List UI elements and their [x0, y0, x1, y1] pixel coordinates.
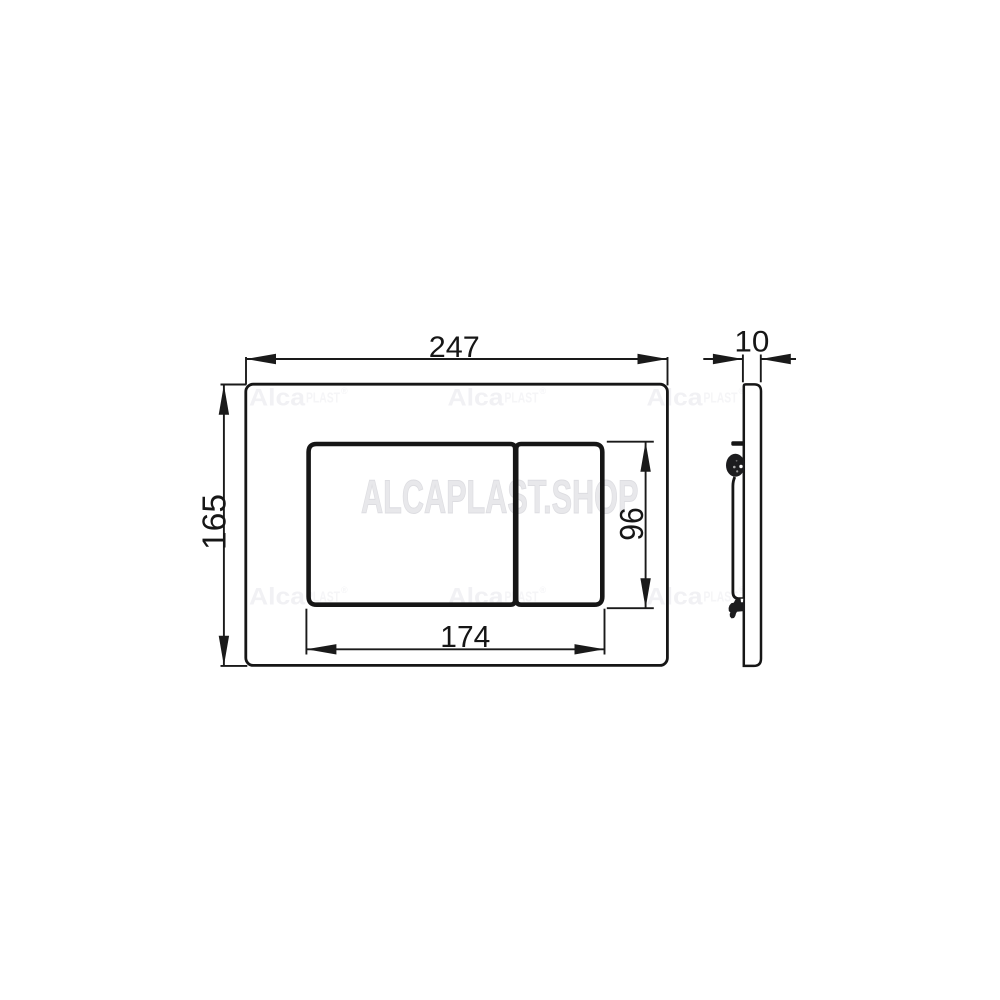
svg-text:®: ® [341, 386, 348, 396]
svg-text:PLAST: PLAST [306, 390, 340, 407]
svg-text:Alca: Alca [647, 385, 703, 412]
svg-text:247: 247 [429, 331, 480, 364]
svg-text:ALCAPLAST.SHOP: ALCAPLAST.SHOP [361, 471, 638, 524]
svg-text:Alca: Alca [249, 584, 305, 611]
svg-text:96: 96 [613, 507, 650, 541]
svg-text:10: 10 [734, 325, 769, 358]
svg-text:PLAST: PLAST [505, 390, 539, 407]
svg-text:®: ® [540, 585, 547, 595]
svg-text:Alca: Alca [647, 584, 703, 611]
svg-text:Alca: Alca [448, 385, 504, 412]
svg-text:174: 174 [440, 619, 490, 654]
svg-text:PLAST: PLAST [704, 390, 738, 407]
svg-text:®: ® [341, 585, 348, 595]
svg-text:Alca: Alca [249, 385, 305, 412]
svg-text:165: 165 [195, 494, 232, 550]
svg-text:®: ® [540, 386, 547, 396]
